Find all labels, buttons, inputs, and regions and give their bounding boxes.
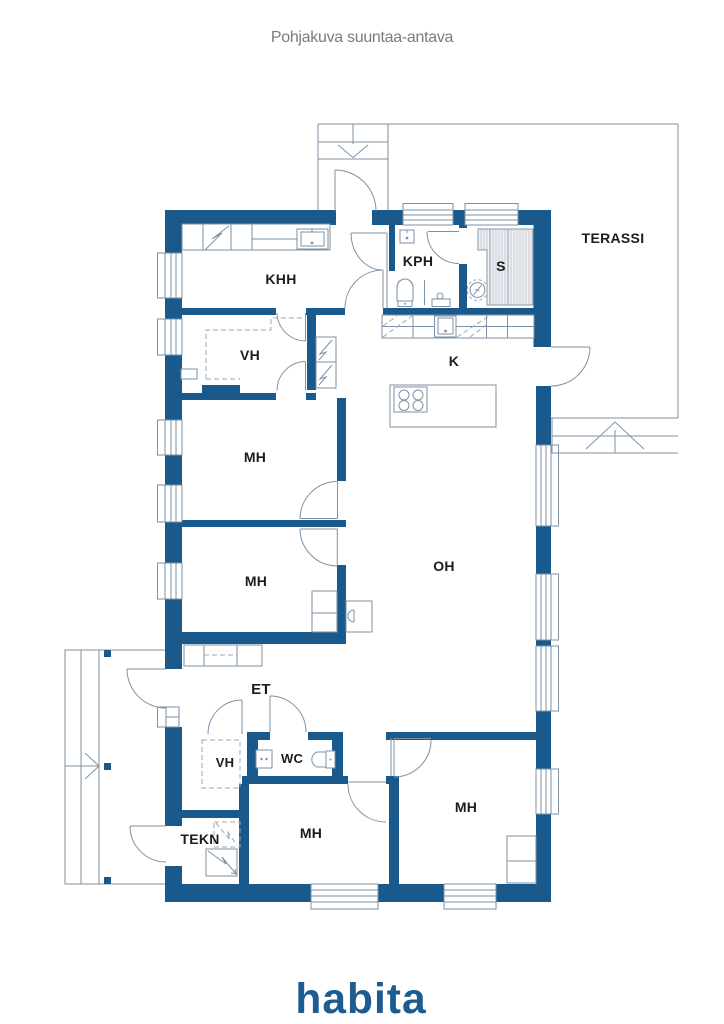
svg-text:MH: MH bbox=[245, 573, 267, 589]
svg-text:TEKN: TEKN bbox=[180, 831, 219, 847]
svg-text:VH: VH bbox=[240, 347, 260, 363]
svg-text:KHH: KHH bbox=[265, 271, 296, 287]
svg-text:ET: ET bbox=[251, 681, 271, 698]
svg-text:K: K bbox=[449, 353, 459, 369]
svg-text:habita: habita bbox=[295, 976, 426, 1023]
svg-text:KPH: KPH bbox=[403, 253, 433, 269]
svg-text:OH: OH bbox=[433, 558, 455, 574]
svg-text:MH: MH bbox=[300, 825, 322, 841]
svg-text:Pohjakuva suuntaa-antava: Pohjakuva suuntaa-antava bbox=[271, 29, 454, 46]
svg-text:VH: VH bbox=[216, 755, 234, 770]
svg-text:TERASSI: TERASSI bbox=[582, 230, 645, 246]
svg-text:MH: MH bbox=[244, 449, 266, 465]
svg-text:S: S bbox=[496, 258, 506, 274]
svg-text:MH: MH bbox=[455, 799, 477, 815]
svg-text:WC: WC bbox=[281, 751, 303, 766]
